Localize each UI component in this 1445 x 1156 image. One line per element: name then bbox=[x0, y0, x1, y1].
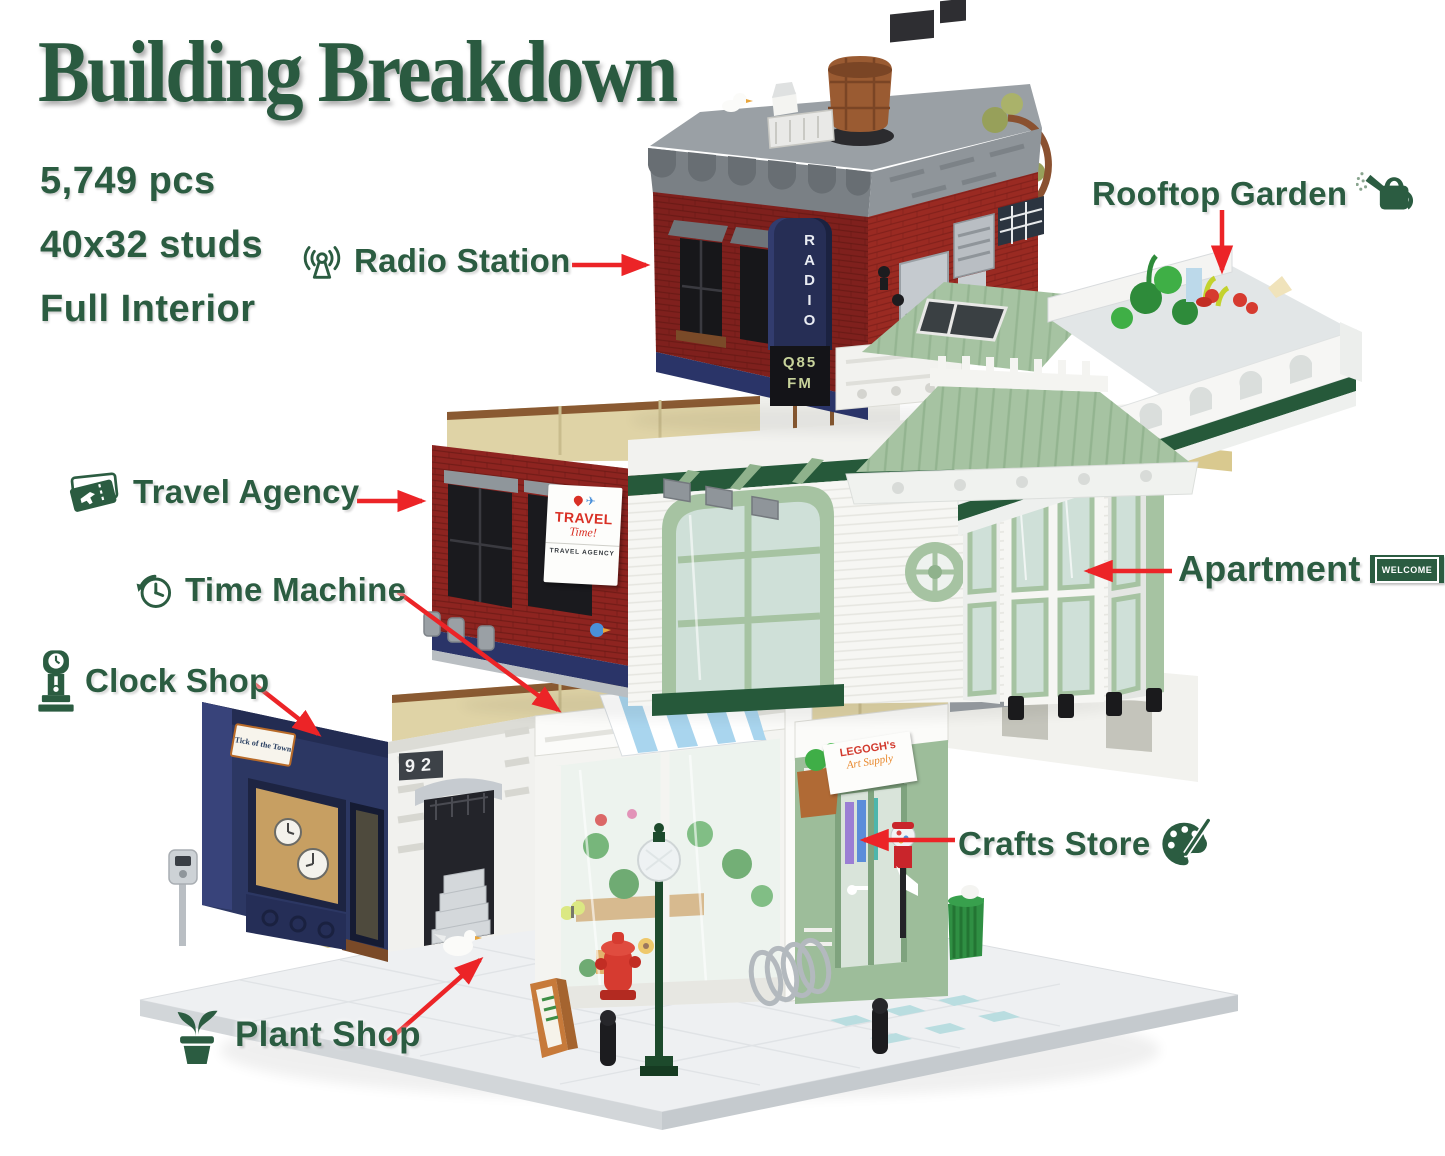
radio-sign-text: RADIO bbox=[802, 232, 817, 332]
travel-agency-sign: ✈ TRAVEL Time! TRAVEL AGENCY bbox=[543, 484, 622, 586]
door-number-plate: 92 bbox=[399, 750, 443, 780]
watering-can-icon bbox=[1356, 166, 1418, 222]
broadcast-antenna-icon bbox=[299, 238, 345, 284]
label-apartment: Apartment WELCOME bbox=[1178, 548, 1444, 590]
stat-dimensions: 40x32 studs bbox=[40, 224, 263, 267]
radio-sign-frequency: Q85FM bbox=[770, 346, 830, 406]
potted-plant-icon bbox=[168, 1004, 226, 1066]
label-clock-shop: Clock Shop bbox=[36, 648, 270, 714]
label-rooftop-garden: Rooftop Garden bbox=[1092, 166, 1418, 222]
travel-sign-subtitle: TRAVEL AGENCY bbox=[545, 542, 620, 558]
map-pin-icon bbox=[572, 494, 585, 507]
time-rewind-icon bbox=[132, 568, 176, 612]
label-travel-agency: Travel Agency bbox=[66, 466, 359, 518]
stat-interior: Full Interior bbox=[40, 288, 256, 331]
parking-meter bbox=[169, 850, 197, 946]
bollard bbox=[600, 1010, 616, 1066]
bollard bbox=[872, 998, 888, 1054]
label-time-machine: Time Machine bbox=[132, 568, 406, 612]
page-title: Building Breakdown bbox=[38, 22, 676, 123]
skylight bbox=[918, 300, 1006, 340]
porthole-window bbox=[905, 542, 965, 602]
poster: RADIO Q85FM ✈ TRAVEL Time! TRAVEL AGENCY… bbox=[0, 0, 1445, 1156]
label-crafts-store: Crafts Store bbox=[958, 818, 1215, 870]
stat-piece-count: 5,749 pcs bbox=[40, 160, 216, 203]
grandfather-clock-icon bbox=[36, 648, 76, 714]
tickets-icon bbox=[66, 466, 124, 518]
airplane-icon: ✈ bbox=[585, 494, 596, 509]
trash-can bbox=[948, 885, 984, 960]
label-radio-station: Radio Station bbox=[299, 238, 571, 284]
radio-station-sign: RADIO Q85FM bbox=[768, 218, 832, 400]
label-plant-shop: Plant Shop bbox=[168, 1004, 421, 1066]
blue-bird bbox=[590, 623, 604, 637]
radio-sign-panel bbox=[768, 218, 832, 350]
door-92-building bbox=[388, 716, 535, 952]
welcome-mat-icon: WELCOME bbox=[1370, 555, 1445, 583]
paint-palette-icon bbox=[1159, 818, 1215, 870]
